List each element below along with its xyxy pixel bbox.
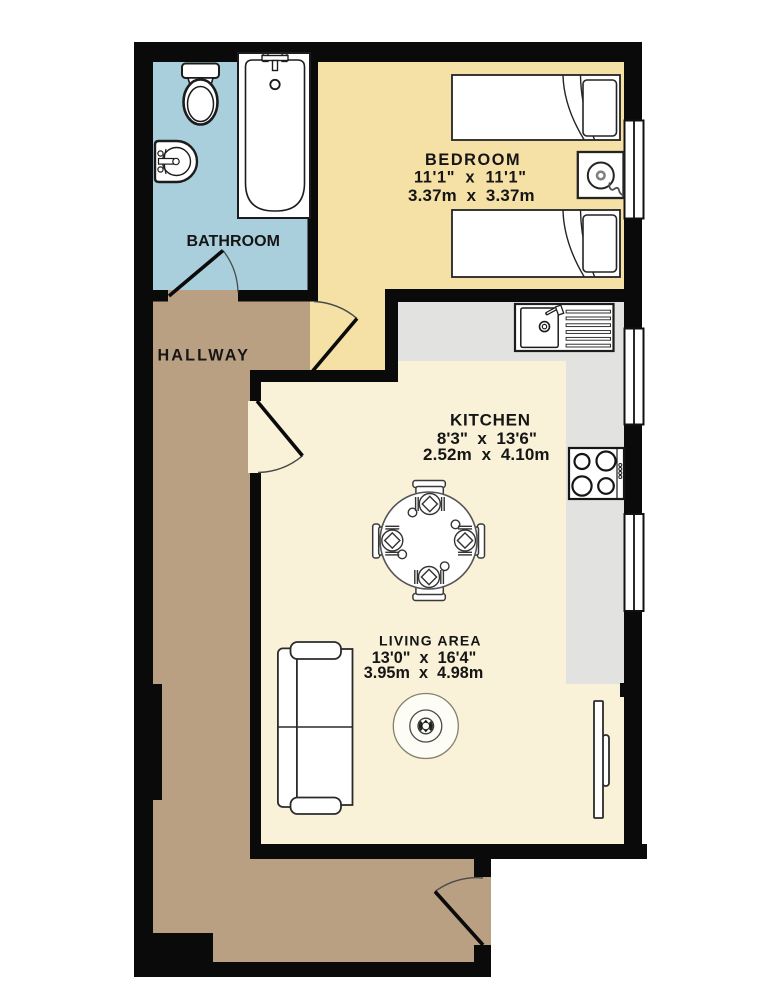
svg-text:BATHROOM: BATHROOM xyxy=(186,233,280,250)
svg-text:LIVING AREA: LIVING AREA xyxy=(379,633,481,649)
svg-text:HALLWAY: HALLWAY xyxy=(157,346,248,364)
svg-text:3.37m x 3.37m: 3.37m x 3.37m xyxy=(408,186,535,205)
svg-text:KITCHEN: KITCHEN xyxy=(450,411,530,430)
svg-text:2.52m x 4.10m: 2.52m x 4.10m xyxy=(423,445,550,464)
svg-text:3.95m x 4.98m: 3.95m x 4.98m xyxy=(364,664,484,682)
svg-text:BEDROOM: BEDROOM xyxy=(425,151,520,169)
svg-text:11'1" x 11'1": 11'1" x 11'1" xyxy=(414,169,526,187)
